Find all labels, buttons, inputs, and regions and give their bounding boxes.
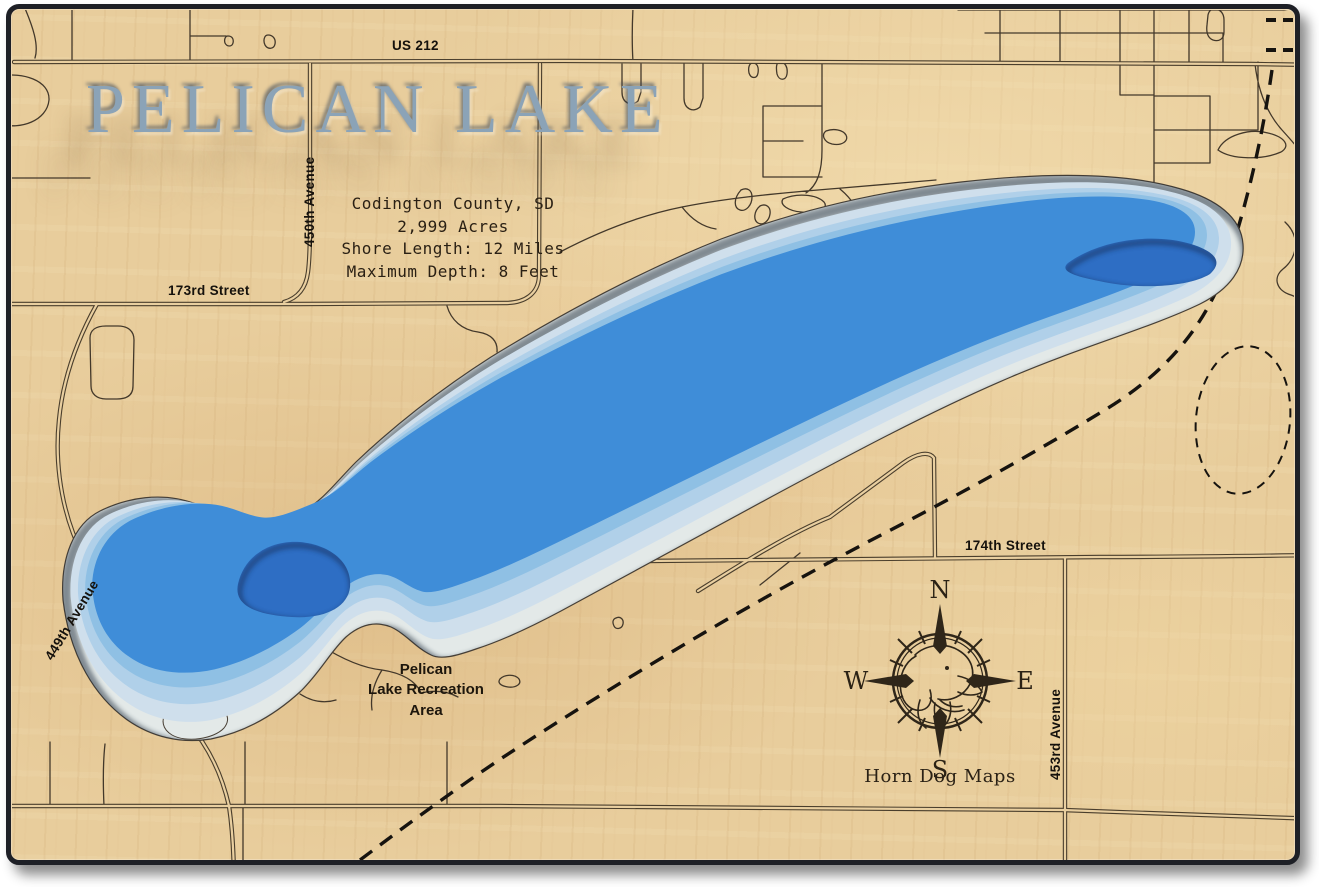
compass-cardinal-points — [864, 604, 1016, 758]
map-overlay: N E S W PELICAN LAKE Codington County, S… — [0, 0, 1319, 887]
recreation-line1: Pelican — [345, 660, 507, 680]
dashed-pond-outline — [1189, 341, 1298, 498]
road-label-us212: US 212 — [392, 38, 439, 53]
road-label-450th-avenue: 450th Avenue — [302, 157, 317, 247]
wood-lake-map: N E S W PELICAN LAKE Codington County, S… — [0, 0, 1319, 887]
info-max-depth: Maximum Depth: 8 Feet — [308, 261, 598, 284]
road-label-173rd-street: 173rd Street — [168, 283, 250, 298]
lake-title: PELICAN LAKE — [86, 70, 670, 150]
maker-label: Horn Dog Maps — [852, 766, 1028, 787]
info-shore-length: Shore Length: 12 Miles — [308, 238, 598, 261]
compass-north-label: N — [930, 576, 951, 604]
lake-main-body — [80, 184, 1202, 683]
recreation-line3: Area — [345, 701, 507, 721]
road-label-174th-street: 174th Street — [965, 538, 1046, 553]
recreation-area-label: Pelican Lake Recreation Area — [345, 660, 507, 721]
compass-west-label: W — [844, 667, 869, 695]
recreation-line2: Lake Recreation — [345, 680, 507, 700]
road-label-453rd-avenue: 453rd Avenue — [1048, 689, 1063, 780]
info-county: Codington County, SD — [308, 193, 598, 216]
compass-rose: N E S W — [844, 576, 1034, 784]
compass-east-label: E — [1016, 667, 1034, 695]
info-acres: 2,999 Acres — [308, 216, 598, 239]
lake-info-block: Codington County, SD 2,999 Acres Shore L… — [308, 193, 598, 284]
